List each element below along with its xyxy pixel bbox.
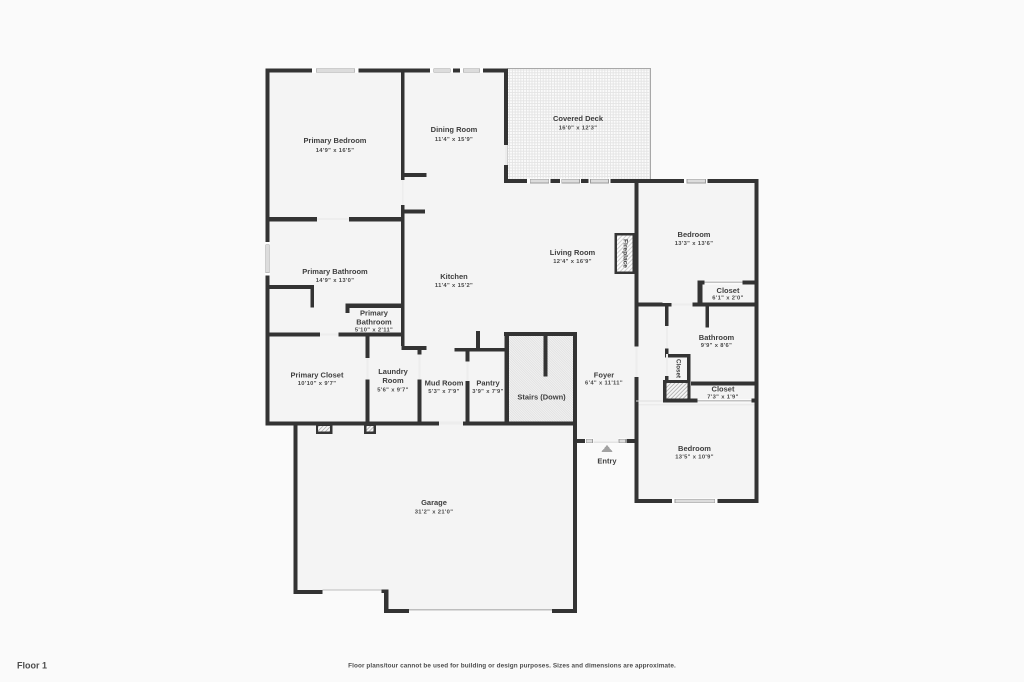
svg-text:13'3" x 13'6": 13'3" x 13'6" [675,241,714,247]
svg-text:12'4" x 16'9": 12'4" x 16'9" [553,259,592,265]
svg-text:Closet: Closet [675,359,682,378]
svg-text:10'10" x 9'7": 10'10" x 9'7" [298,381,337,387]
svg-text:Bedroom: Bedroom [678,230,711,239]
svg-text:3'9" x 7'9": 3'9" x 7'9" [472,389,503,395]
svg-text:Stairs (Down): Stairs (Down) [517,393,566,402]
svg-text:14'9" x 13'0": 14'9" x 13'0" [316,278,355,284]
svg-text:Covered Deck: Covered Deck [553,114,604,123]
svg-text:Floor plans/tour cannot be use: Floor plans/tour cannot be used for buil… [348,663,676,670]
svg-text:Primary Closet: Primary Closet [291,371,344,380]
svg-text:Closet: Closet [717,286,740,295]
svg-text:Mud Room: Mud Room [425,379,464,388]
svg-text:Bathroom: Bathroom [356,318,392,327]
svg-text:16'0" x 12'3": 16'0" x 12'3" [559,126,598,132]
svg-text:Floor 1: Floor 1 [17,661,47,671]
svg-text:Pantry: Pantry [476,379,500,388]
svg-text:9'9" x 8'6": 9'9" x 8'6" [701,343,732,349]
svg-text:Living Room: Living Room [550,248,596,257]
svg-text:6'1" x 2'0": 6'1" x 2'0" [712,295,743,301]
svg-text:Kitchen: Kitchen [440,272,468,281]
svg-text:6'4" x 11'11": 6'4" x 11'11" [585,381,623,387]
svg-text:13'5" x 10'9": 13'5" x 10'9" [675,455,714,461]
svg-text:Laundry: Laundry [378,367,408,376]
svg-text:5'3" x 7'9": 5'3" x 7'9" [428,389,459,395]
svg-text:Closet: Closet [712,384,735,393]
svg-text:Primary Bedroom: Primary Bedroom [304,136,367,145]
svg-text:Entry: Entry [597,457,617,466]
svg-text:Garage: Garage [421,498,447,507]
svg-text:5'6" x 9'7": 5'6" x 9'7" [377,387,408,393]
svg-text:Foyer: Foyer [594,371,615,380]
svg-text:Room: Room [382,376,404,385]
svg-text:Dining Room: Dining Room [431,125,478,134]
svg-text:31'2" x 21'0": 31'2" x 21'0" [415,510,454,516]
svg-text:Fireplace: Fireplace [621,239,628,268]
svg-text:Bathroom: Bathroom [699,333,735,342]
svg-text:Bedroom: Bedroom [678,444,711,453]
svg-text:Primary Bathroom: Primary Bathroom [302,267,368,276]
svg-text:11'4" x 15'2": 11'4" x 15'2" [435,283,473,289]
svg-text:Primary: Primary [360,309,389,318]
svg-text:11'4" x 15'9": 11'4" x 15'9" [435,137,473,143]
svg-text:14'9" x 16'5": 14'9" x 16'5" [316,148,355,154]
